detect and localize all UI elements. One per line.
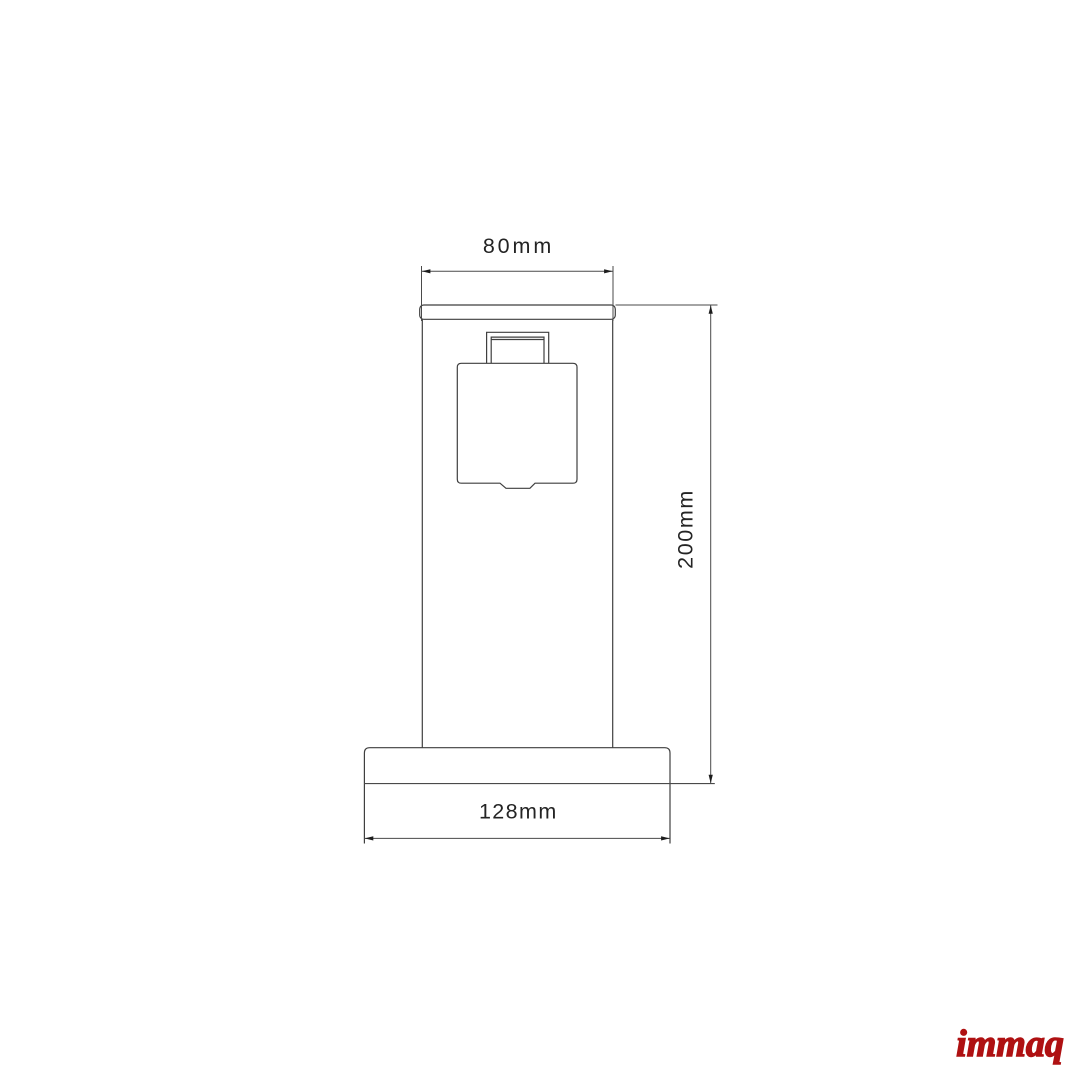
svg-text:80mm: 80mm xyxy=(483,234,554,258)
svg-text:immaq: immaq xyxy=(956,1023,1064,1065)
svg-text:128mm: 128mm xyxy=(479,800,558,824)
svg-text:200mm: 200mm xyxy=(674,489,698,569)
